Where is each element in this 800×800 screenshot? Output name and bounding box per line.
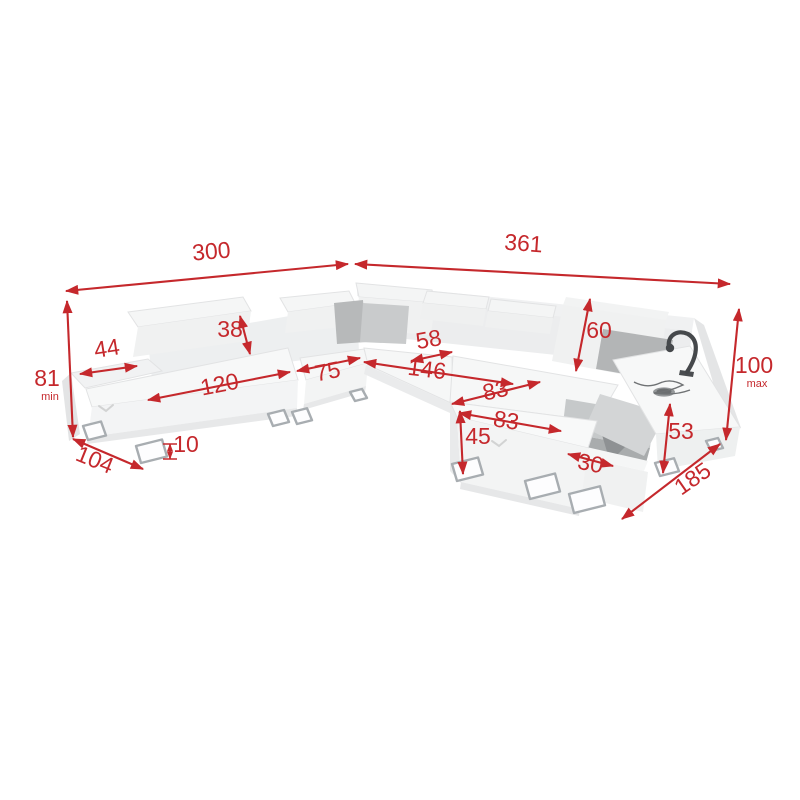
corner-pillow-right [360, 303, 409, 344]
dimension-value: 38 [217, 316, 243, 342]
dimension-value: 75 [312, 356, 342, 386]
dimension-value: 45 [465, 423, 491, 449]
dimension-width-left: 300 [66, 236, 348, 291]
dimension-value: 83 [480, 375, 510, 406]
dimension-value: 30 [575, 448, 605, 478]
diagram-canvas: 30036181min44381207510410581466083834530… [0, 0, 800, 800]
dimension-value: 100 [735, 352, 773, 378]
dimension-suffix: max [747, 378, 768, 390]
dimension-value: 83 [492, 405, 521, 435]
sofa-leg [292, 408, 312, 424]
dimension-value: 53 [668, 418, 694, 444]
dimension-value: 361 [504, 229, 544, 258]
dimension-leg-height: 10 [163, 431, 199, 459]
dimension-value: 10 [173, 431, 199, 457]
dimension-suffix: min [41, 391, 59, 403]
dimension-depth-left: 104 [72, 439, 143, 479]
dimension-value: 300 [191, 236, 231, 265]
dimension-value: 146 [406, 354, 447, 384]
dimension-value: 60 [586, 317, 612, 343]
dimension-value: 58 [414, 324, 444, 354]
dimension-width-right: 361 [355, 229, 730, 284]
dimension-value: 81 [34, 365, 60, 391]
sofa-leg [83, 422, 106, 441]
sofa-leg [136, 440, 167, 464]
sofa-illustration [62, 283, 741, 516]
dimension-value: 104 [72, 440, 118, 479]
sofa-leg [268, 410, 289, 426]
dimension-line [355, 264, 730, 284]
dimension-line [66, 264, 348, 291]
dimension-value: 44 [92, 333, 122, 363]
sofa-dimension-diagram: 30036181min44381207510410581466083834530… [0, 0, 800, 800]
